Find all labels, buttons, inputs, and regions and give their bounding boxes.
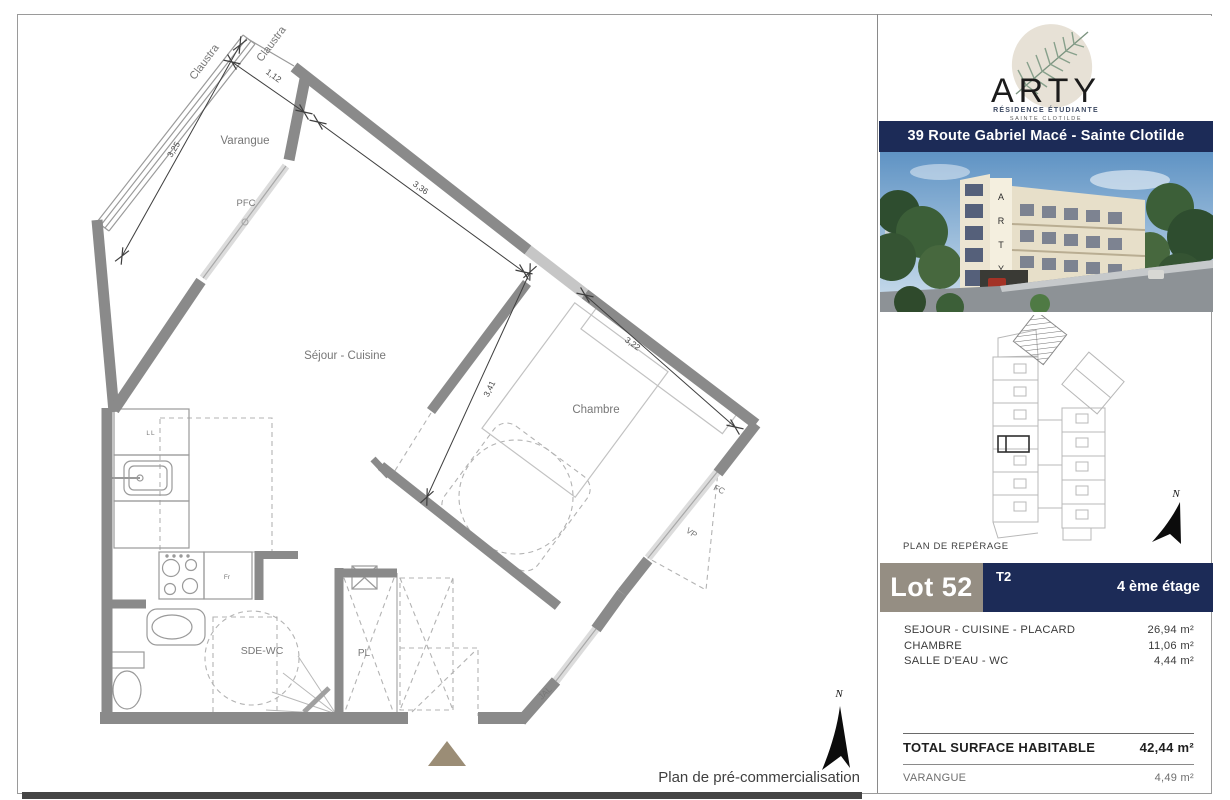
varangue-row: VARANGUE 4,49 m² [903,772,1194,784]
washer-label: LL [146,430,155,437]
table-row: SEJOUR - CUISINE - PLACARD 26,94 m² [904,623,1194,639]
dimension-lines [122,45,735,497]
area-label: SALLE D'EAU - WC [904,654,1009,670]
lot-number: Lot 52 [880,563,983,612]
panel-divider [877,14,878,793]
apartment-floor-plan: N Claustra Claustra Varangue PFC Séjour … [17,14,878,794]
chambre-label: Chambre [572,404,619,416]
north-arrow-sidebar: N [1152,488,1181,544]
claustra-label-2: Claustra [254,24,289,65]
area-value: 11,06 m² [1148,639,1194,655]
lot-floor: 4 ème étage [1117,563,1200,612]
pfc-label: PFC [237,198,256,209]
walls [97,67,756,721]
dim-1-12: 1,12 [264,67,283,85]
lot-position-marker [998,436,1029,452]
building-photo: AR TY [880,152,1213,312]
total-label: TOTAL SURFACE HABITABLE [903,740,1095,755]
dim-3-25: 3,25 [165,140,182,160]
kitchen-fixtures [106,409,252,599]
area-label: CHAMBRE [904,639,962,655]
logo-subtitle: RÉSIDENCE ÉTUDIANTE [993,105,1099,114]
entrance-marker [428,741,466,766]
vp-label: VP [684,525,699,540]
floor-plan-sheet: N Claustra Claustra Varangue PFC Séjour … [0,0,1230,800]
logo-block: ARTY RÉSIDENCE ÉTUDIANTE SAINTE CLOTILDE [880,16,1213,121]
dashed-guides [160,413,718,716]
dim-3-41: 3,41 [481,379,497,398]
annex-label: VARANGUE [903,772,966,784]
north-letter-sidebar: N [1171,488,1180,500]
svg-text:A: A [998,192,1004,202]
areas-table: SEJOUR - CUISINE - PLACARD 26,94 m² CHAM… [904,623,1194,670]
area-value: 4,44 m² [1154,654,1194,670]
area-label: SEJOUR - CUISINE - PLACARD [904,623,1075,639]
total-surface-row: TOTAL SURFACE HABITABLE 42,44 m² [903,740,1194,755]
table-row: CHAMBRE 11,06 m² [904,639,1194,655]
dim-3-36: 3,36 [411,179,430,197]
address-banner: 39 Route Gabriel Macé - Sainte Clotilde [879,121,1213,152]
total-value: 42,44 m² [1140,740,1194,755]
pl-label: PL [358,648,371,659]
furniture [482,303,740,497]
north-arrow: N [822,688,850,770]
lot-info: T2 4 ème étage [983,563,1213,612]
fc-label: FC [712,482,727,496]
page-bottom-edge [22,792,862,799]
lot-banner: Lot 52 T2 4 ème étage [880,563,1213,612]
svg-text:T: T [998,240,1004,250]
logo-title: ARTY [991,72,1101,110]
svg-text:R: R [998,216,1005,226]
plan-caption: Plan de pré-commercialisation [658,769,860,786]
fridge-label: Fr [224,574,231,581]
reperage-plan: N [880,315,1213,550]
lot-type: T2 [996,569,1011,584]
sejour-label: Séjour - Cuisine [304,350,386,362]
annex-value: 4,49 m² [1155,772,1194,784]
table-row: SALLE D'EAU - WC 4,44 m² [904,654,1194,670]
area-value: 26,94 m² [1147,623,1194,639]
total-divider-top [903,733,1194,734]
total-divider-bottom [903,764,1194,765]
plan-labels: Claustra Claustra Varangue PFC Séjour - … [146,24,726,702]
arty-logo: ARTY RÉSIDENCE ÉTUDIANTE SAINTE CLOTILDE [880,16,1213,121]
sde-wc-label: SDE-WC [241,645,284,657]
north-letter: N [834,688,843,700]
reperage-label: PLAN DE REPÉRAGE [903,541,1009,552]
varangue-label: Varangue [220,135,269,147]
bath-fixtures [111,566,397,719]
